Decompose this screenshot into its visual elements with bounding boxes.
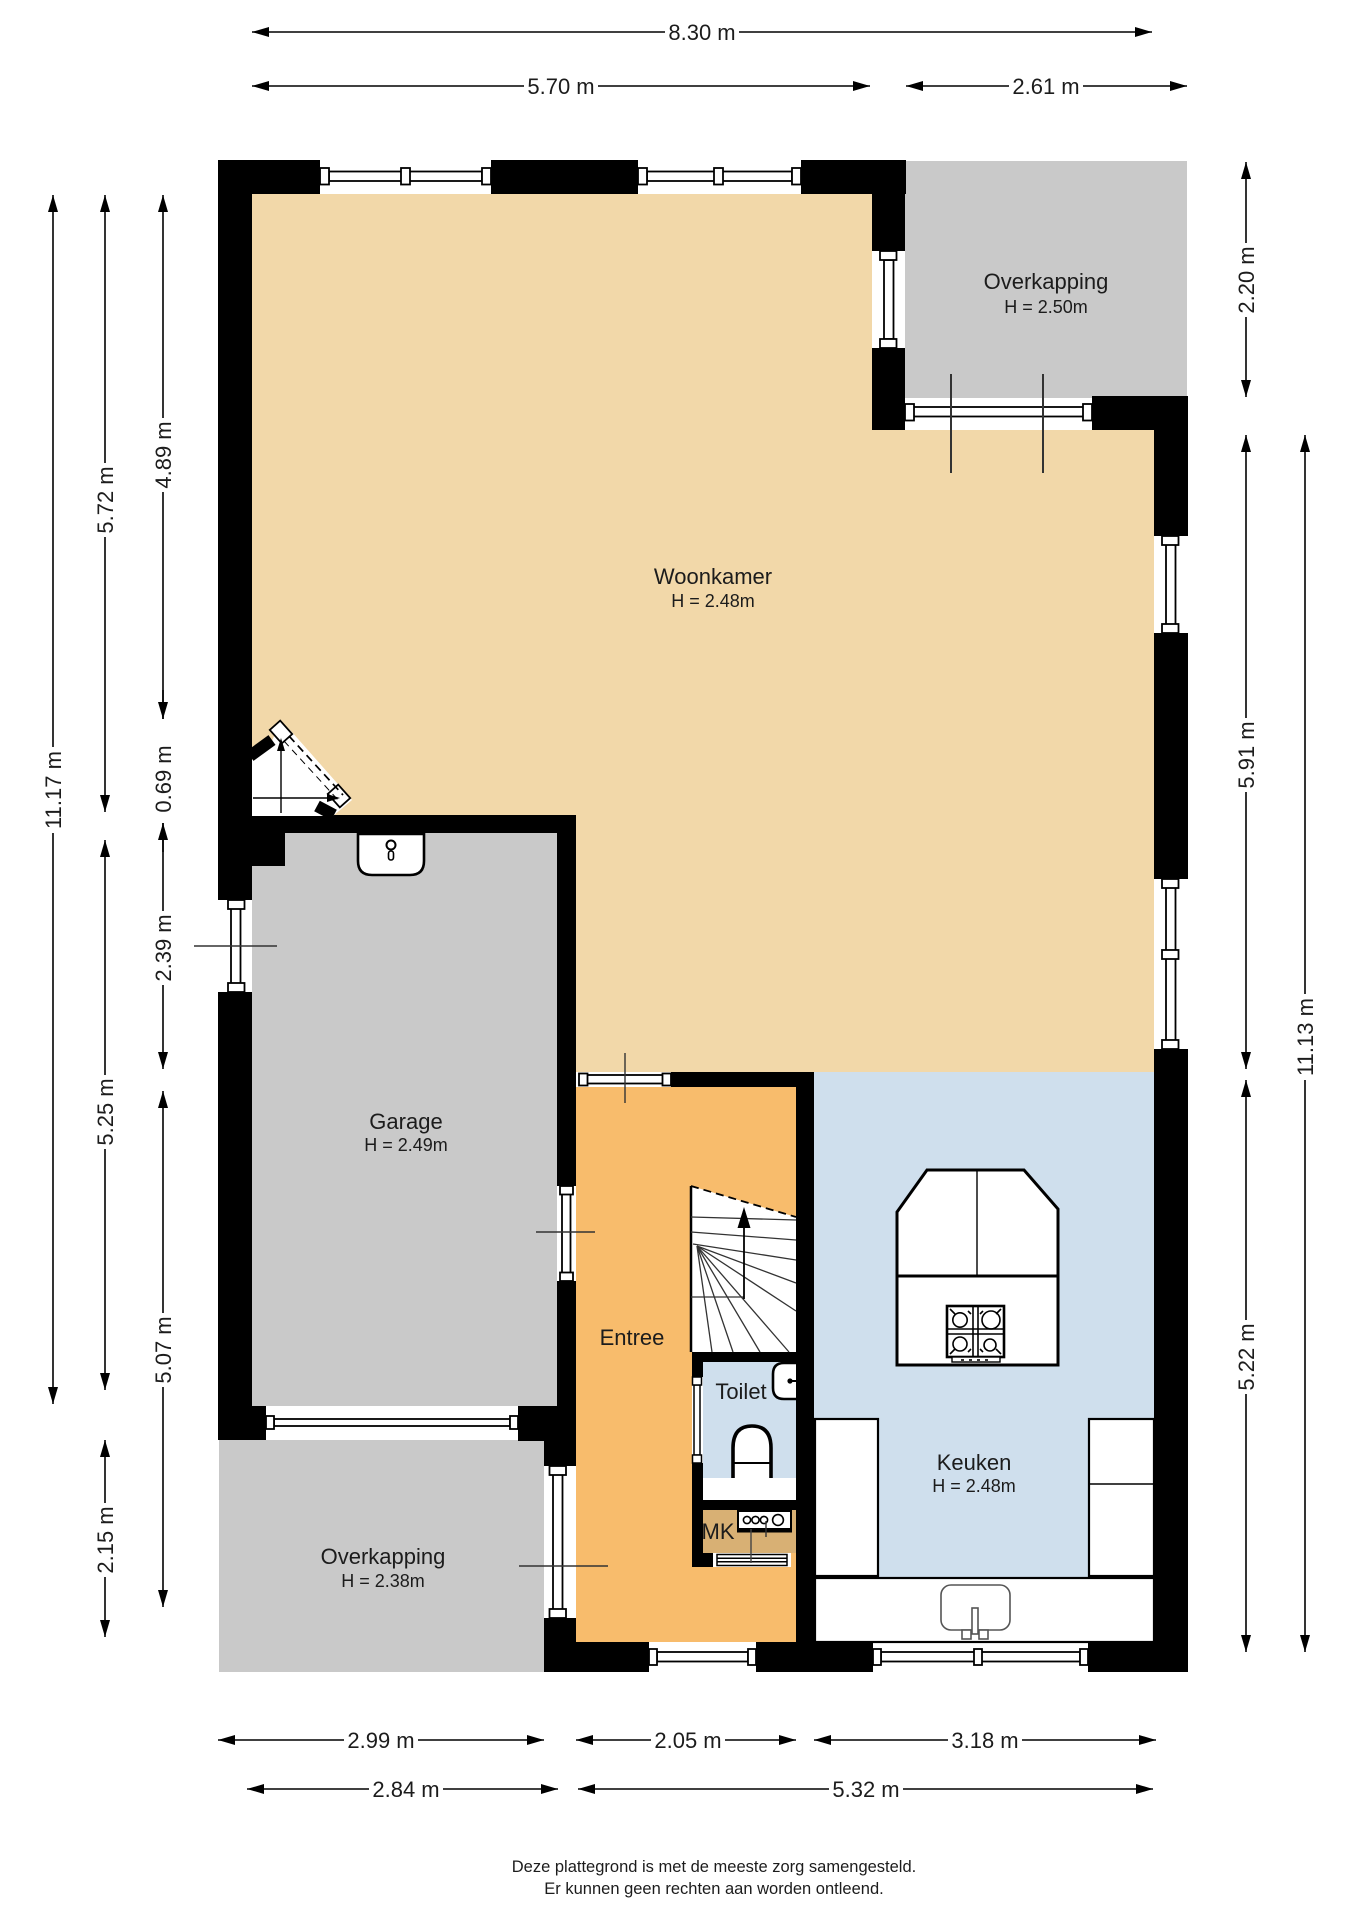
svg-text:H = 2.48m: H = 2.48m [671,591,755,611]
svg-text:H = 2.38m: H = 2.38m [341,1571,425,1591]
svg-text:2.61 m: 2.61 m [1012,74,1079,99]
svg-text:H = 2.48m: H = 2.48m [932,1476,1016,1496]
svg-text:5.70 m: 5.70 m [527,74,594,99]
svg-text:Toilet: Toilet [715,1379,766,1404]
svg-text:2.39 m: 2.39 m [151,914,176,981]
svg-text:MK: MK [702,1519,735,1544]
svg-text:0.69 m: 0.69 m [151,745,176,812]
svg-text:2.20 m: 2.20 m [1234,246,1259,313]
svg-text:3.18 m: 3.18 m [951,1728,1018,1753]
svg-text:Deze plattegrond is met de mee: Deze plattegrond is met de meeste zorg s… [512,1858,916,1876]
svg-text:2.84 m: 2.84 m [372,1777,439,1802]
svg-text:Woonkamer: Woonkamer [654,564,772,589]
svg-text:4.89 m: 4.89 m [151,421,176,488]
svg-text:11.17 m: 11.17 m [41,751,66,829]
svg-text:5.72 m: 5.72 m [93,466,118,533]
svg-text:Garage: Garage [369,1109,442,1134]
svg-text:5.32 m: 5.32 m [832,1777,899,1802]
svg-text:H = 2.49m: H = 2.49m [364,1135,448,1155]
svg-text:5.22 m: 5.22 m [1234,1323,1259,1390]
svg-text:5.91 m: 5.91 m [1234,721,1259,788]
svg-text:2.05 m: 2.05 m [654,1728,721,1753]
svg-text:11.13 m: 11.13 m [1293,998,1318,1076]
svg-text:2.15 m: 2.15 m [93,1506,118,1573]
svg-text:Keuken: Keuken [937,1450,1012,1475]
svg-text:H = 2.50m: H = 2.50m [1004,297,1088,317]
svg-text:Overkapping: Overkapping [984,269,1109,294]
svg-text:5.07 m: 5.07 m [151,1316,176,1383]
svg-text:Entree: Entree [600,1325,665,1350]
svg-text:5.25 m: 5.25 m [93,1078,118,1145]
svg-text:2.99 m: 2.99 m [347,1728,414,1753]
svg-text:Overkapping: Overkapping [321,1544,446,1569]
svg-text:Er kunnen geen rechten aan wor: Er kunnen geen rechten aan worden ontlee… [544,1880,883,1898]
svg-text:8.30 m: 8.30 m [668,20,735,45]
